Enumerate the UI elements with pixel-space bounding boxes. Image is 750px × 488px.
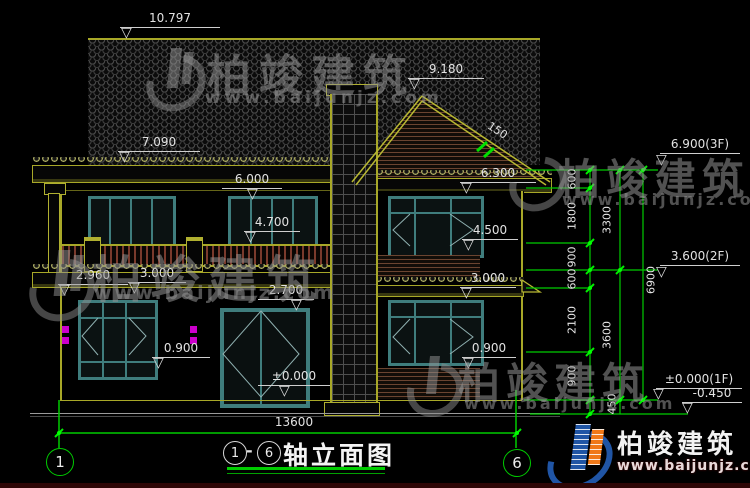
level-marker-icon: ▽ xyxy=(279,385,290,397)
window-mullion xyxy=(450,303,452,363)
vdim-600b: 600 xyxy=(566,269,579,290)
window-mullion xyxy=(450,199,452,255)
window-transom xyxy=(391,316,481,318)
level-marker-icon: ▽ xyxy=(121,27,132,39)
window-mullion xyxy=(102,303,104,377)
logo-block: 柏竣建筑 www.baijunjz.com xyxy=(541,420,749,482)
vdim-2100: 2100 xyxy=(566,306,579,334)
level-marker-icon: ▽ xyxy=(461,287,472,299)
window-mullion xyxy=(125,303,127,377)
terrain-line xyxy=(30,413,560,414)
main-eave-tile-edge xyxy=(32,157,348,165)
window-mullion xyxy=(414,199,416,255)
watermark-url: www.baijunjz.com xyxy=(94,282,336,304)
level-marker-icon: ▽ xyxy=(247,188,258,200)
entry-door xyxy=(220,308,310,408)
logo-brand-text: 柏竣建筑 xyxy=(617,424,737,461)
axis-bubble-1: 1 xyxy=(46,448,74,476)
wall-lamp xyxy=(190,326,197,333)
title-underline xyxy=(227,467,385,470)
window-transom xyxy=(81,317,155,319)
elevation-drawing-canvas: 10.797 ▽ 7.090 ▽ 9.180 ▽ 6.300 ▽ 6.000 ▽… xyxy=(0,0,750,488)
level-marker-icon: ▽ xyxy=(682,402,693,414)
dim-ridge: 10.797 xyxy=(120,12,220,28)
dim-total-width: 13600 xyxy=(264,416,324,431)
wall-trim-line xyxy=(60,190,330,191)
level-marker-icon: ▽ xyxy=(656,266,667,278)
level-marker-icon: ▽ xyxy=(463,239,474,251)
vdim-6900: 6900 xyxy=(645,266,658,294)
watermark-url: www.baijunjz.com xyxy=(562,190,750,209)
axis-bubble-6: 6 xyxy=(503,449,531,477)
title-dash: - xyxy=(246,441,253,460)
dim-ground: ±0.000 xyxy=(258,370,330,386)
logo-url-text: www.baijunjz.com xyxy=(617,458,750,474)
stone-tower xyxy=(330,94,378,402)
left-1f-window xyxy=(78,300,158,380)
vdim-3600: 3600 xyxy=(601,321,614,349)
level-2f: 3.600(2F) xyxy=(660,250,740,266)
title-axis-start-circle: 1 xyxy=(223,441,247,465)
dim-left-eave: 7.090 xyxy=(118,136,200,152)
vdim-900a: 900 xyxy=(566,247,579,268)
watermark-url: www.baijunjz.com xyxy=(464,394,675,413)
watermark-url: www.baijunjz.com xyxy=(205,88,443,108)
main-eave-fascia xyxy=(32,165,348,183)
door-center-mullion xyxy=(260,312,262,404)
window-mullion xyxy=(414,303,416,363)
title-axis-end-circle: 6 xyxy=(257,441,281,465)
wall-lamp xyxy=(62,337,69,344)
bottom-strip xyxy=(0,483,750,488)
level-marker-icon: ▽ xyxy=(153,357,164,369)
level-marker-icon: ▽ xyxy=(461,182,472,194)
window-transom xyxy=(391,212,481,214)
window-rail xyxy=(81,361,155,363)
title-underline-2 xyxy=(227,473,385,474)
vdim-3300: 3300 xyxy=(601,206,614,234)
wall-lamp xyxy=(62,326,69,333)
level-marker-icon: ▽ xyxy=(119,151,130,163)
